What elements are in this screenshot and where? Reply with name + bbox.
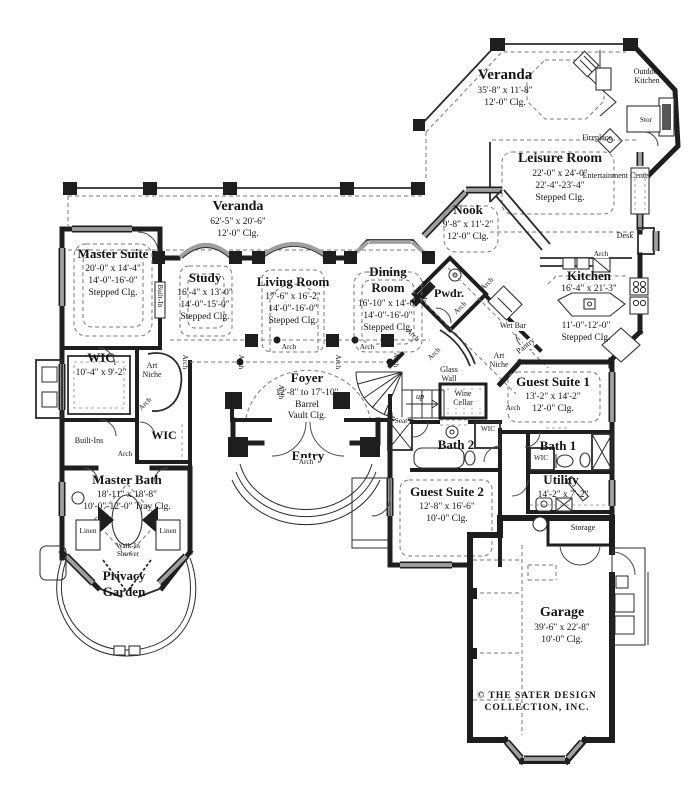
room-label-master-suite: Master Suite xyxy=(78,246,149,262)
room-label-privacy-garden: Privacy Garden xyxy=(92,568,156,601)
room-label-kitchen: Kitchen xyxy=(567,268,611,284)
label-stor: Stor xyxy=(640,116,652,124)
label-wic-bath2: WIC xyxy=(481,425,495,433)
room-label-pwdr: Pwdr. xyxy=(434,286,464,301)
room-dims: Vault Clg. xyxy=(288,410,327,422)
room-dims: 12'-8" x 16'-6" xyxy=(419,501,475,513)
copyright-line-1: © THE SATER DESIGN xyxy=(477,691,597,702)
copyright-line-2: COLLECTION, INC. xyxy=(485,703,590,714)
label-seat: Seat xyxy=(395,417,408,425)
room-dims: 62'-5" x 20'-6" xyxy=(210,216,266,228)
room-label-leisure: Leisure Room xyxy=(518,150,602,168)
room-label-study: Study xyxy=(189,270,222,286)
left-pilaster-block xyxy=(36,360,62,418)
room-dims: 14'-0"-16'-0" xyxy=(88,275,137,287)
floorplan-drawing xyxy=(0,0,700,788)
label-fireplace: Fireplace xyxy=(582,134,612,143)
room-dims: 10'-4" x 9'-2" xyxy=(76,367,127,379)
label-arch: Arch xyxy=(181,355,189,370)
room-dims: Stepped Clg. xyxy=(88,287,137,299)
label-arch: Arch xyxy=(299,458,314,466)
room-label-garage: Garage xyxy=(540,604,584,622)
label-arch: Arch xyxy=(392,353,400,368)
label-wic-bath1: WIC xyxy=(534,454,548,462)
label-built-in: Built-In xyxy=(156,284,164,307)
label-wet-bar: Wet Bar xyxy=(500,322,526,331)
room-label-wic-master: WIC xyxy=(87,350,114,366)
label-arch: Arch xyxy=(594,250,609,258)
label-art-niche-2: Art Niche xyxy=(484,352,514,370)
room-dims: 18'-11" x 18'-8" xyxy=(97,489,157,501)
label-linen-right: Linen xyxy=(159,527,176,535)
label-up: up xyxy=(416,393,424,402)
room-label-bath1: Bath 1 xyxy=(540,438,576,454)
room-label-dining-room: Dining Room xyxy=(357,264,419,297)
arch-dot-columns xyxy=(237,337,394,366)
label-built-ins: Built-Ins xyxy=(75,437,103,446)
room-dims: Stepped Clg. xyxy=(561,332,610,344)
privacy-garden-walls xyxy=(40,546,196,656)
label-arch: Arch xyxy=(334,355,342,370)
room-label-storage: Storage xyxy=(571,524,595,533)
room-dims: 12'-0" Clg. xyxy=(447,231,488,243)
room-label-wic2: WIC xyxy=(151,428,176,443)
room-dims: 12'-0" Clg. xyxy=(532,403,573,415)
room-dims: 14'-2" x 7'-2" xyxy=(538,489,589,501)
room-label-utility: Utility xyxy=(543,472,578,488)
room-dims: 10'-0"-12'-0" Tray Clg. xyxy=(83,501,170,513)
room-dims: 9'-8" x 11'-2" xyxy=(443,219,493,231)
room-dims: 39'-6" x 22'-8" xyxy=(534,622,590,634)
label-desk: Desk xyxy=(617,232,633,241)
room-dims: 14'-0"-16'-0" xyxy=(363,310,412,322)
room-dims: 13'-2" x 14'-2" xyxy=(525,391,581,403)
room-dims: Stepped Clg. xyxy=(180,311,229,323)
room-label-guest-suite-2: Guest Suite 2 xyxy=(410,484,484,500)
room-label-guest-suite-1: Guest Suite 1 xyxy=(516,374,590,390)
label-art-niche: Art Niche xyxy=(138,362,166,380)
room-dims: 11'-0"-12'-0" xyxy=(562,320,611,332)
room-dims: Stepped Clg. xyxy=(535,192,584,204)
label-arch: Arch xyxy=(277,385,285,400)
room-label-foyer: Foyer xyxy=(291,370,323,386)
room-label-living-room: Living Room xyxy=(257,274,330,290)
room-label-veranda-rear: Veranda xyxy=(478,66,532,85)
label-arch: Arch xyxy=(282,343,297,351)
label-arch: Arch xyxy=(237,355,245,370)
label-glass-wall: Glass Wall xyxy=(432,366,466,384)
label-walk-in-shower: Walk-In Shower xyxy=(111,542,145,557)
label-linen-left: Linen xyxy=(79,527,96,535)
room-dims: 14'-0"-15'-0" xyxy=(180,299,229,311)
room-label-wine-cellar: Wine Cellar xyxy=(445,390,481,408)
room-dims: 16'-4" x 21'-3" xyxy=(561,283,617,295)
room-dims: 17'-6" x 16'-2" xyxy=(265,291,321,303)
label-arch: Arch xyxy=(118,450,133,458)
room-dims: 22'-0" x 24'-0" xyxy=(532,168,588,180)
room-dims: 10'-0" Clg. xyxy=(426,513,467,525)
label-entertainment-center: Entertainment Center xyxy=(582,172,652,181)
room-label-veranda-main: Veranda xyxy=(213,198,264,216)
room-label-bath2: Bath 2 xyxy=(438,437,474,453)
room-dims: 10'-0" Clg. xyxy=(541,634,582,646)
label-outdoor-kitchen: Outdoor Kitchen xyxy=(624,68,670,86)
room-dims: 14'-0"-16'-0" xyxy=(268,303,317,315)
label-built-in: Built-In xyxy=(420,280,428,303)
room-dims: 16'-4" x 13'-0" xyxy=(177,287,233,299)
floor-plan: Veranda 35'-8" x 11'-8" 12'-0" Clg. Outd… xyxy=(0,0,700,788)
room-label-master-bath: Master Bath xyxy=(92,472,161,488)
room-dims: 35'-8" x 11'-8" xyxy=(477,85,532,97)
label-arch: Arch xyxy=(506,404,521,412)
room-dims: 22'-4"-23'-4" xyxy=(535,180,584,192)
room-dims: 20'-0" x 14'-4" xyxy=(85,263,141,275)
room-dims: 16'-10" x 14'-0" xyxy=(358,298,418,310)
label-arch: Arch xyxy=(360,343,375,351)
room-dims: Stepped Clg. xyxy=(268,315,317,327)
room-dims: 12'-0" Clg. xyxy=(484,97,525,109)
room-label-nook: Nook xyxy=(453,202,483,218)
room-dims: 12'-0" Clg. xyxy=(217,228,258,240)
